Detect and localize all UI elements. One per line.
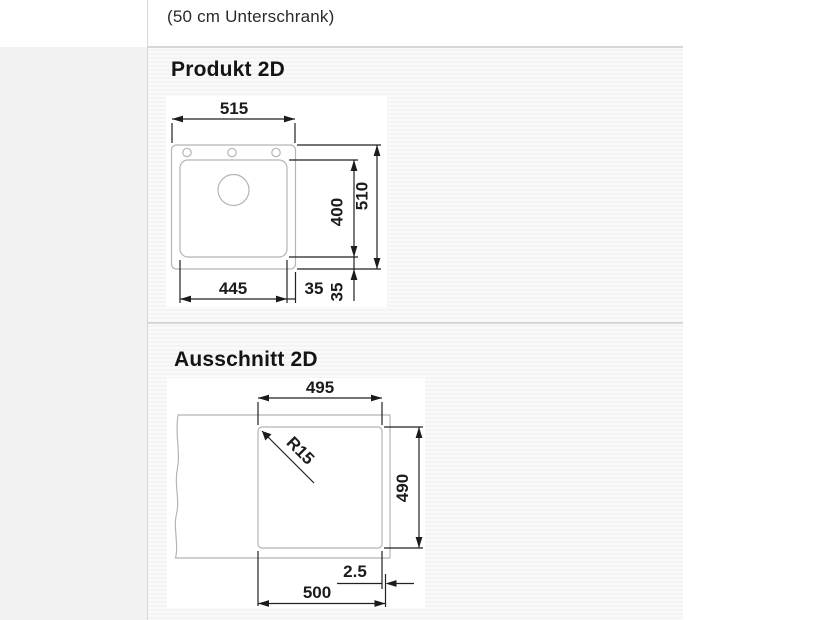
dim-basin-width-label: 445 — [219, 279, 247, 298]
dim-right-offset-label: 35 — [305, 279, 324, 298]
dim-bottom-offset-label: 35 — [328, 283, 347, 302]
sink-outline-group — [172, 145, 296, 269]
right-margin-column — [683, 0, 826, 620]
tap-hole-right — [272, 148, 280, 156]
ausschnitt-2d-drawing: 495 R15 490 2.5 — [167, 378, 425, 608]
produkt-2d-drawing: 515 400 510 35 — [166, 96, 387, 307]
dim-edge-gap-label: 2.5 — [343, 562, 367, 581]
dim-bottom-offset: 35 — [328, 257, 358, 301]
section-title-produkt-2d: Produkt 2D — [171, 58, 285, 82]
drain-circle — [218, 175, 249, 206]
horizontal-divider — [148, 46, 683, 48]
section-title-ausschnitt-2d: Ausschnitt 2D — [174, 348, 318, 372]
dim-basin-width: 445 35 — [180, 260, 323, 303]
dim-cutout-width-label: 495 — [306, 378, 334, 397]
dim-total-depth: 510 — [353, 145, 381, 269]
content-left-border — [147, 0, 148, 620]
produkt-2d-drawing-panel: 515 400 510 35 — [166, 96, 387, 307]
dim-total-depth-label: 510 — [353, 182, 372, 210]
tap-hole-center — [228, 148, 236, 156]
dim-cutout-depth-label: 490 — [393, 474, 412, 502]
dim-edge-gap: 2.5 — [337, 551, 414, 607]
ausschnitt-2d-drawing-panel: 495 R15 490 2.5 — [167, 378, 425, 608]
horizontal-divider — [148, 322, 683, 324]
countertop-outline — [175, 415, 390, 558]
tap-hole-left — [183, 148, 191, 156]
dim-total-width: 515 — [172, 99, 295, 143]
dim-basin-depth-label: 400 — [328, 198, 347, 226]
page-subtitle: (50 cm Unterschrank) — [167, 7, 334, 27]
countertop-outline-group — [175, 415, 390, 558]
sink-outline — [172, 145, 296, 269]
dim-overall-width-label: 500 — [303, 583, 331, 602]
left-margin-column — [0, 47, 147, 620]
dim-total-width-label: 515 — [220, 99, 248, 118]
